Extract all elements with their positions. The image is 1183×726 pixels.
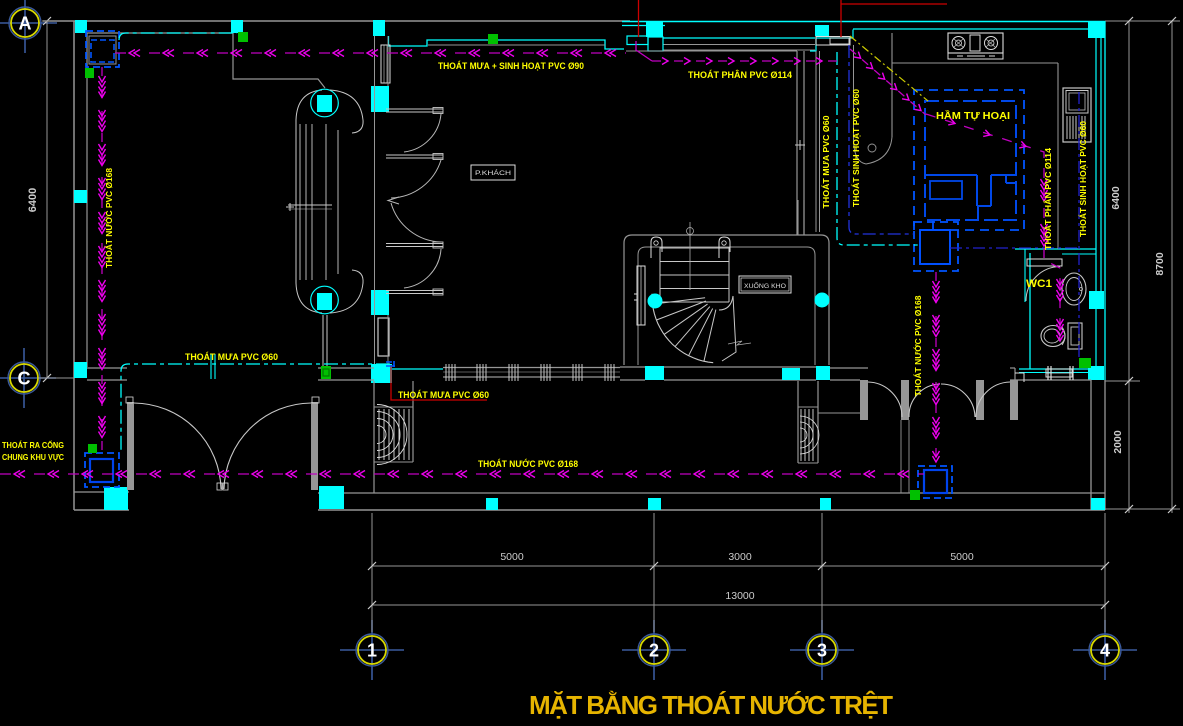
svg-text:THOÁT NƯỚC PVC Ø168: THOÁT NƯỚC PVC Ø168 — [912, 295, 923, 396]
svg-text:MẶT BẰNG THOÁT NƯỚC TRỆT: MẶT BẰNG THOÁT NƯỚC TRỆT — [529, 690, 893, 720]
svg-text:6400: 6400 — [1110, 186, 1122, 210]
svg-text:2000: 2000 — [1112, 430, 1124, 454]
svg-text:THOÁT NƯỚC PVC Ø168: THOÁT NƯỚC PVC Ø168 — [103, 168, 114, 268]
svg-text:P.KHÁCH: P.KHÁCH — [475, 168, 511, 177]
svg-text:WC1: WC1 — [1026, 278, 1052, 290]
svg-text:THOÁT MƯA + SINH HOẠT PVC Ø90: THOÁT MƯA + SINH HOẠT PVC Ø90 — [438, 61, 584, 71]
svg-text:CHUNG KHU VỰC: CHUNG KHU VỰC — [2, 452, 64, 462]
svg-text:THOÁT NƯỚC PVC Ø168: THOÁT NƯỚC PVC Ø168 — [478, 458, 578, 469]
svg-text:C: C — [18, 368, 31, 388]
svg-text:4: 4 — [1100, 640, 1110, 660]
svg-text:THOÁT RA CỐNG: THOÁT RA CỐNG — [2, 439, 64, 450]
svg-text:THOÁT SINH HOẠT PVC Ø60: THOÁT SINH HOẠT PVC Ø60 — [851, 89, 861, 207]
svg-text:1: 1 — [367, 640, 377, 660]
svg-text:6400: 6400 — [27, 188, 39, 212]
svg-text:THOÁT PHÂN PVC Ø114: THOÁT PHÂN PVC Ø114 — [688, 69, 792, 80]
svg-text:THOÁT SINH HOẠT PVC Ø60: THOÁT SINH HOẠT PVC Ø60 — [1078, 121, 1088, 237]
svg-text:2: 2 — [649, 640, 659, 660]
svg-text:8700: 8700 — [1154, 252, 1166, 276]
svg-text:THOÁT MƯA PVC Ø60: THOÁT MƯA PVC Ø60 — [398, 390, 489, 400]
svg-text:HẦM TỰ HOẠI: HẦM TỰ HOẠI — [936, 109, 1010, 122]
svg-text:A: A — [19, 13, 32, 33]
svg-text:3: 3 — [817, 640, 827, 660]
svg-text:3000: 3000 — [728, 551, 752, 563]
svg-text:5000: 5000 — [950, 551, 974, 563]
svg-text:THOÁT MƯA PVC Ø60: THOÁT MƯA PVC Ø60 — [821, 115, 831, 208]
svg-text:5000: 5000 — [500, 551, 524, 563]
svg-text:13000: 13000 — [725, 590, 754, 602]
svg-text:THOÁT MƯA PVC Ø60: THOÁT MƯA PVC Ø60 — [185, 352, 278, 362]
svg-text:THOÁT PHÂN PVC Ø114: THOÁT PHÂN PVC Ø114 — [1042, 148, 1053, 250]
